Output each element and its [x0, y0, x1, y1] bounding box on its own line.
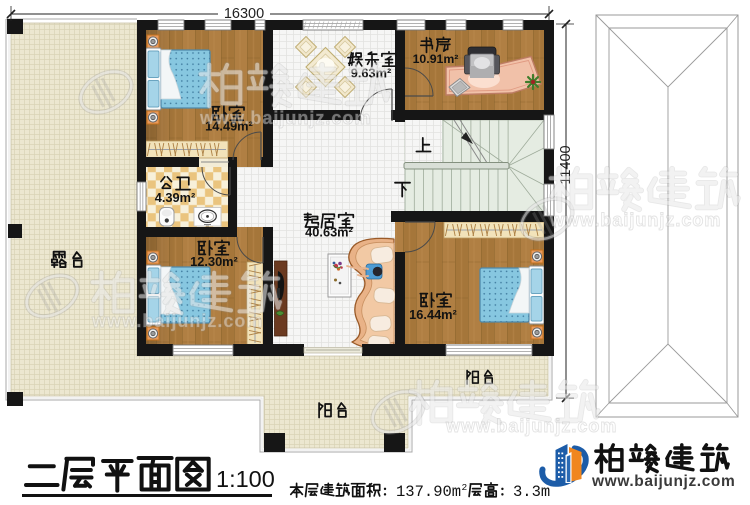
svg-text:3.3m: 3.3m: [513, 483, 550, 501]
svg-text:2: 2: [462, 482, 468, 493]
svg-text:16.44m²: 16.44m²: [409, 307, 457, 322]
svg-text:www.baijunjz.com: www.baijunjz.com: [445, 416, 617, 436]
svg-text:www.baijunjz.com: www.baijunjz.com: [199, 108, 371, 128]
svg-text:12.30m²: 12.30m²: [190, 254, 238, 269]
svg-text:1:100: 1:100: [216, 466, 275, 492]
svg-text:16300: 16300: [224, 6, 264, 22]
svg-text:www.baijunjz.com: www.baijunjz.com: [549, 210, 721, 230]
svg-text:4.39m²: 4.39m²: [155, 190, 196, 205]
svg-text:137.90m: 137.90m: [396, 483, 461, 501]
svg-text:www.baijunjz.com: www.baijunjz.com: [591, 473, 735, 490]
svg-text:www.baijunjz.com: www.baijunjz.com: [91, 311, 263, 331]
svg-text:40.63m²: 40.63m²: [305, 225, 353, 240]
svg-text:10.91m²: 10.91m²: [413, 52, 459, 66]
